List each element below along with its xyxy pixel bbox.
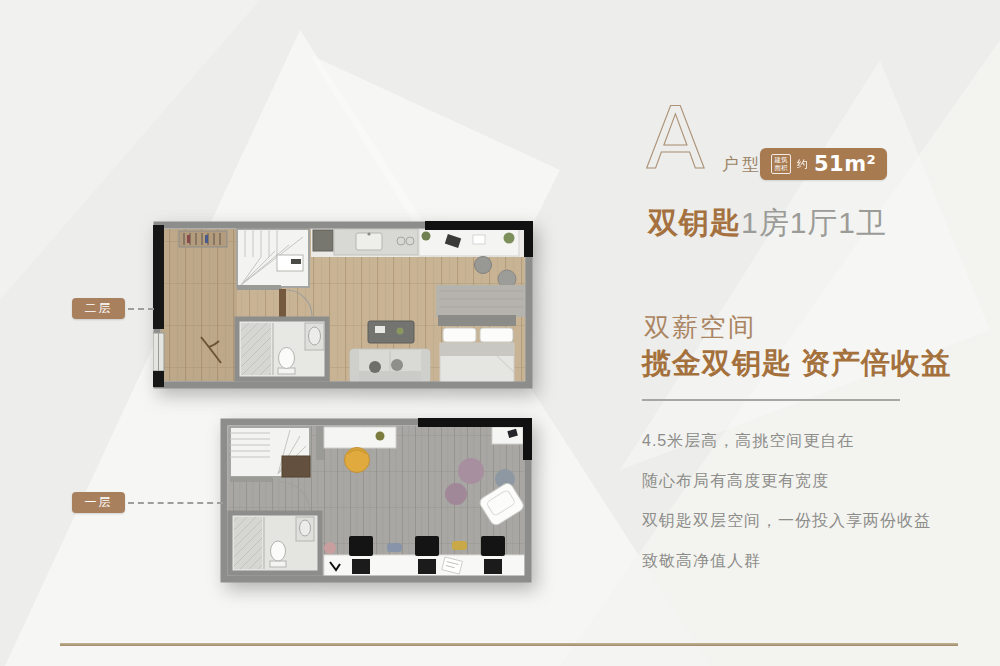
svg-text:A: A: [646, 104, 705, 174]
poster-canvas: 二层 一层 A 户型 建筑面积 约 51m² 双钥匙1房1厅1卫 双薪空间 揽金…: [0, 0, 1000, 666]
unit-headline: 双钥匙1房1厅1卫: [648, 203, 887, 244]
feature-item: 致敬高净值人群: [642, 551, 931, 567]
lower-staircase: [230, 427, 310, 482]
upper-bathroom: [237, 319, 327, 379]
lower-bathroom: [230, 513, 320, 573]
unit-type-letter: A: [646, 104, 718, 174]
feature-item: 双钥匙双层空间，一份投入享两份收益: [642, 511, 931, 527]
lower-floor-leader-line: [128, 502, 223, 504]
upper-floorplan: [153, 221, 533, 389]
toilet-icon: [271, 541, 286, 561]
corner-desk: [492, 427, 523, 444]
feature-item: 4.5米层高，高挑空间更自在: [642, 431, 931, 447]
lower-floor-label: 一层: [72, 492, 125, 513]
window-bench: [324, 427, 396, 448]
work-desk: [324, 536, 525, 578]
round-chair: [345, 448, 370, 473]
area-value: 51m²: [814, 152, 876, 176]
lower-floorplan: [220, 418, 532, 583]
kitchen: [313, 229, 418, 255]
slogan-divider: [642, 399, 900, 401]
feature-item: 随心布局有高度更有宽度: [642, 471, 931, 487]
area-badge: 建筑面积 约 51m²: [760, 148, 887, 180]
upper-floor-label: 二层: [72, 298, 125, 319]
upper-staircase: [237, 229, 309, 290]
headline-bold: 双钥匙: [648, 206, 741, 239]
unit-type-suffix: 户型: [722, 153, 762, 176]
headline-light: 1房1厅1卫: [741, 206, 887, 239]
coffee-table: [368, 321, 414, 343]
slogan-line2: 揽金双钥匙 资产倍收益: [642, 344, 951, 384]
desk-chair: [475, 257, 492, 274]
bottom-gold-rule: [60, 643, 958, 646]
upper-floor-leader-line: [128, 308, 154, 310]
wardrobe: [179, 231, 227, 247]
bed: [436, 285, 526, 385]
area-badge-box-label: 建筑面积: [771, 154, 791, 174]
feature-list: 4.5米层高，高挑空间更自在 随心布局有高度更有宽度 双钥匙双层空间，一份投入享…: [642, 431, 931, 591]
sofa: [350, 349, 430, 383]
slogan-line1: 双薪空间: [644, 310, 756, 345]
toilet-icon: [279, 348, 295, 369]
area-approx: 约: [797, 157, 808, 172]
